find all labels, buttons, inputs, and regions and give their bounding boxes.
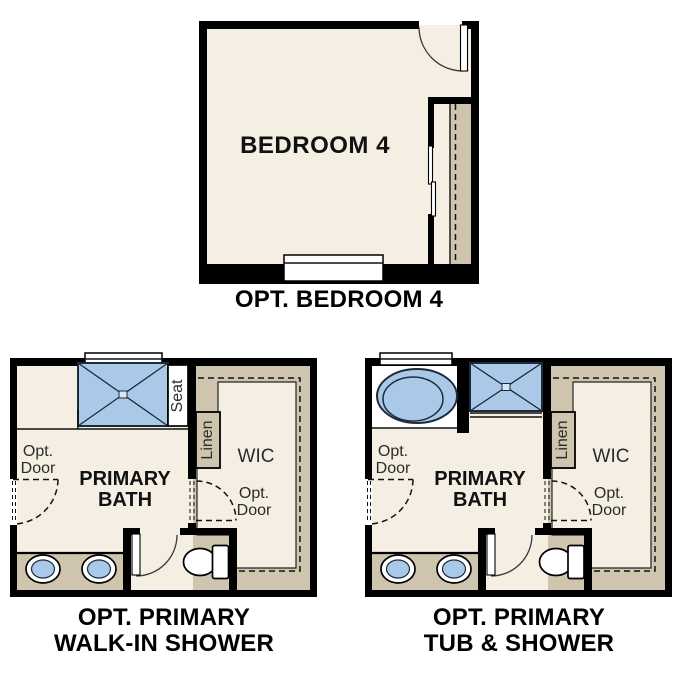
shower-drain <box>119 391 127 398</box>
toilet-tank <box>568 546 584 579</box>
bedroom-caption: OPT. BEDROOM 4 <box>199 287 479 313</box>
shower-drain <box>502 384 510 391</box>
toilet-room-wall-top-right <box>535 528 592 535</box>
walkin-shower-caption: OPT. PRIMARY WALK-IN SHOWER <box>8 605 320 657</box>
bath-wall-right <box>310 358 317 597</box>
toilet-room-wall-top-right <box>180 528 237 535</box>
sink-bowl <box>32 560 55 578</box>
primary-bath-label-line1: PRIMARY <box>405 469 555 490</box>
toilet-room-wall-right <box>229 528 237 597</box>
bedroom-window <box>284 255 383 281</box>
floorplan-sheet: BEDROOM 4 OPT. BEDROOM 4 Seat Linen Opt.… <box>0 0 687 687</box>
toilet-room-wall-left <box>478 528 486 597</box>
opt-door-label-line1: Opt. <box>12 443 64 460</box>
bedroom-wall-left <box>199 21 207 284</box>
toilet-door-leaf <box>487 534 495 575</box>
bath-wall-left-lower <box>10 525 17 597</box>
walkin-shower-caption-line2: WALK-IN SHOWER <box>8 631 320 657</box>
wic-opt-door-label-line2: Door <box>582 502 636 519</box>
toilet-bowl <box>184 549 217 576</box>
tub-shower-caption: OPT. PRIMARY TUB & SHOWER <box>363 605 675 657</box>
primary-bath-label: PRIMARY BATH <box>405 469 555 511</box>
primary-bath-label-line2: BATH <box>50 490 200 511</box>
wic-opt-door-label-line1: Opt. <box>582 485 636 502</box>
tub-shower-divider-wall <box>457 358 469 433</box>
bath-wall-right <box>665 358 672 597</box>
sink-bowl <box>387 560 410 578</box>
bedroom-wall-right <box>471 21 479 284</box>
primary-bath-label-line2: BATH <box>405 490 555 511</box>
bedroom-wall-top-left <box>199 21 419 29</box>
linen-label: Linen <box>196 415 220 465</box>
closet-wall-lower <box>428 214 434 264</box>
floorplan-drawing <box>0 0 687 687</box>
bedroom-door-leaf <box>461 25 468 71</box>
sink-bowl <box>88 560 111 578</box>
wic-label: WIC <box>225 446 287 468</box>
bath-wall-left-lower <box>365 525 372 597</box>
bedroom-room-label: BEDROOM 4 <box>229 132 401 160</box>
sink-bowl <box>443 560 466 578</box>
bath-wall-bottom <box>365 590 672 597</box>
toilet-room-wall-right <box>584 528 592 597</box>
wic-opt-door-label: Opt. Door <box>582 485 636 519</box>
tub-shower-caption-line2: TUB & SHOWER <box>363 631 675 657</box>
bath-wall-bottom <box>10 590 317 597</box>
linen-label: Linen <box>551 415 575 465</box>
wic-opt-door-label: Opt. Door <box>227 485 281 519</box>
seat-label: Seat <box>166 371 190 421</box>
closet-sliding-door-panel <box>429 146 433 184</box>
closet-wall-stub <box>428 97 471 104</box>
wic-label: WIC <box>580 446 642 468</box>
closet-sliding-door-panel <box>432 182 436 216</box>
tub-shower-caption-line1: OPT. PRIMARY <box>363 605 675 631</box>
toilet-room-wall-left <box>123 528 131 597</box>
primary-bath-label: PRIMARY BATH <box>50 469 200 511</box>
wic-opt-door-label-line2: Door <box>227 502 281 519</box>
bath-wic-divider-upper <box>543 358 551 479</box>
toilet-tank <box>213 546 229 579</box>
bedroom-closet-shelf <box>450 104 471 264</box>
closet-wall-upper <box>428 104 434 148</box>
wic-opt-door-label-line1: Opt. <box>227 485 281 502</box>
toilet-door-leaf <box>132 534 140 575</box>
primary-bath-label-line1: PRIMARY <box>50 469 200 490</box>
walkin-shower-caption-line1: OPT. PRIMARY <box>8 605 320 631</box>
opt-door-label-line1: Opt. <box>367 443 419 460</box>
